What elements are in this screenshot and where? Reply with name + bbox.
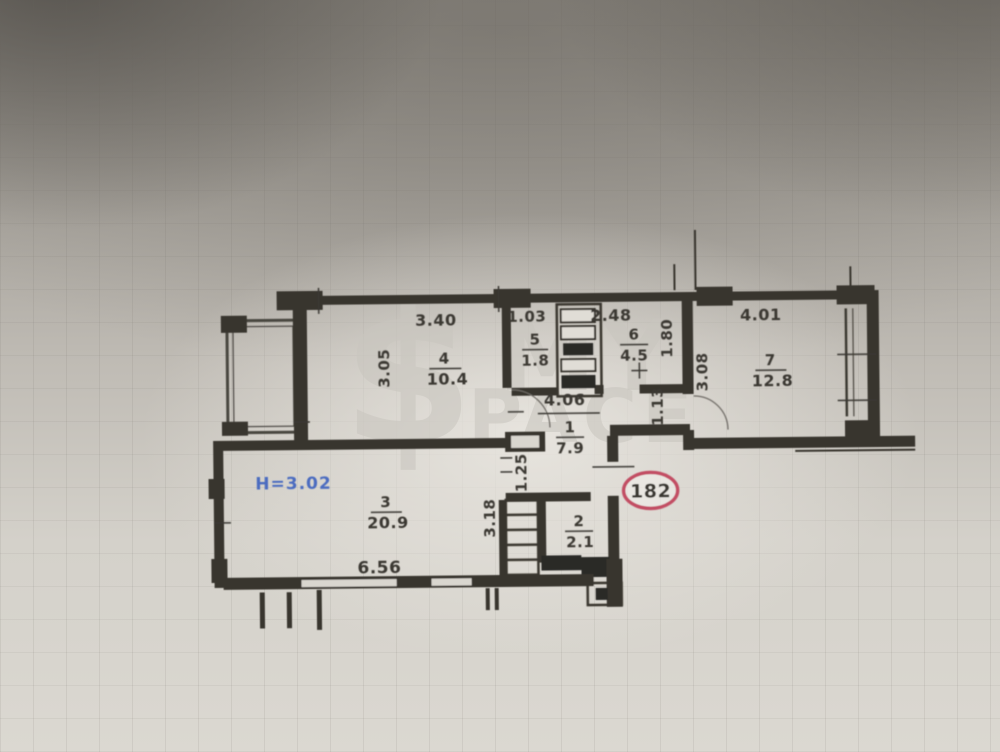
wall-room3-bottom — [224, 574, 594, 590]
shaft-block — [541, 555, 581, 570]
room-label-2: 2 2.1 — [565, 512, 594, 551]
ladder-rungs — [506, 515, 538, 560]
badge-number: 182 — [630, 480, 671, 502]
pier-inner — [511, 436, 539, 448]
window-room3 — [302, 579, 397, 587]
vent-box — [563, 343, 593, 355]
room2-number: 2 — [573, 512, 584, 530]
vent-box — [561, 359, 595, 371]
room1-number: 1 — [564, 418, 575, 436]
dim-room4-height: 3.05 — [375, 349, 393, 388]
room6-area: 4.5 — [620, 346, 648, 364]
dim-top-room6: 2.48 — [590, 306, 632, 325]
room4-number: 4 — [439, 350, 450, 368]
room7-number: 7 — [765, 351, 776, 369]
dim-hall-width: 4.06 — [544, 390, 586, 409]
dim-line-406 — [538, 413, 600, 414]
floorplan-photo: { "plan": { "apartment_badge": "182", "c… — [0, 0, 1000, 752]
shaft-box-inner — [596, 588, 608, 600]
room1-area: 7.9 — [556, 439, 584, 457]
dim-passage: 1.25 — [512, 453, 530, 492]
room7-area: 12.8 — [752, 371, 794, 390]
dim-top-room4: 3.40 — [415, 310, 457, 329]
dim-top-room5: 1.03 — [507, 308, 546, 326]
room2-area: 2.1 — [566, 533, 594, 551]
window-room3 — [432, 578, 472, 585]
wall-stub — [317, 590, 322, 630]
wall-entry-right — [607, 436, 618, 462]
room7-underline — [795, 450, 915, 451]
ladder-shaft-outline — [506, 500, 539, 575]
wall-stub — [486, 588, 490, 610]
floor-plan-drawing: $ MY PACE — [0, 0, 1000, 752]
room6-number: 6 — [628, 326, 639, 344]
wall-pier — [697, 287, 733, 306]
dim-room7-height: 3.08 — [693, 352, 711, 391]
room5-area: 1.8 — [521, 351, 549, 369]
wall-pier — [222, 422, 248, 436]
vent-box — [561, 375, 595, 388]
dim-room6-height: 1.80 — [658, 319, 676, 358]
wall-pier — [208, 479, 224, 499]
room5-number: 5 — [529, 331, 540, 349]
wall-pier — [221, 316, 247, 333]
wall-stub — [260, 592, 265, 628]
room-label-3: 3 20.9 — [367, 493, 409, 532]
vent-box — [561, 326, 595, 339]
apartment-number-badge: 182 — [623, 472, 677, 509]
wall-stub — [495, 588, 499, 610]
dim-wall-113: 1.13 — [649, 387, 667, 426]
wall-entry-right — [608, 496, 620, 566]
dim-top-room7: 4.01 — [740, 305, 782, 324]
loggia-outline — [227, 320, 300, 433]
wall-corner-block — [845, 420, 880, 438]
riser-line — [695, 230, 696, 290]
room3-area: 20.9 — [367, 513, 409, 532]
dim-room3-height: 3.18 — [481, 499, 499, 538]
wall-room7-bottom — [690, 436, 915, 449]
wall-room7-right — [867, 290, 881, 440]
wall-stub — [287, 592, 292, 628]
room4-area: 10.4 — [427, 369, 469, 388]
wall-room7-left — [682, 294, 694, 394]
wall-room4-left — [293, 305, 308, 440]
shaft-block — [581, 557, 609, 577]
room-label-7: 7 12.8 — [751, 351, 793, 390]
door-arc-room7 — [694, 396, 728, 430]
dim-room3-width: 6.56 — [357, 558, 401, 578]
ceiling-height-note: H=3.02 — [255, 474, 332, 495]
room3-number: 3 — [380, 493, 391, 511]
loggia-window-line — [233, 326, 294, 427]
